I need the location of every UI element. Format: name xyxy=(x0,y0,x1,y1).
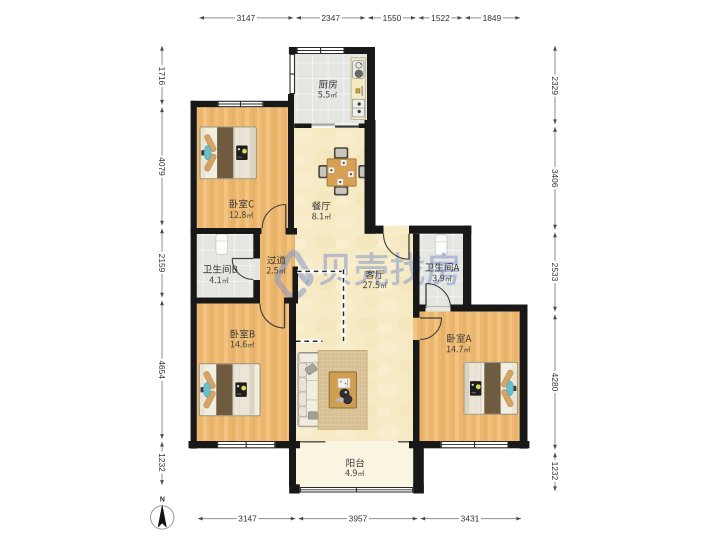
svg-text:N: N xyxy=(160,496,165,503)
svg-text:4280: 4280 xyxy=(550,373,560,392)
svg-text:1232: 1232 xyxy=(157,453,167,472)
svg-text:2347: 2347 xyxy=(321,13,340,23)
svg-text:1522: 1522 xyxy=(431,13,450,23)
svg-text:3957: 3957 xyxy=(349,514,368,524)
svg-text:3406: 3406 xyxy=(550,169,560,188)
svg-text:1232: 1232 xyxy=(550,462,560,481)
svg-text:2329: 2329 xyxy=(550,76,560,95)
svg-text:1716: 1716 xyxy=(157,67,167,86)
svg-text:4654: 4654 xyxy=(157,360,167,379)
svg-text:1550: 1550 xyxy=(383,13,402,23)
svg-text:3431: 3431 xyxy=(461,514,480,524)
svg-text:1849: 1849 xyxy=(483,13,502,23)
svg-text:3147: 3147 xyxy=(237,13,256,23)
svg-text:4079: 4079 xyxy=(157,157,167,176)
svg-text:2159: 2159 xyxy=(157,254,167,273)
svg-text:3147: 3147 xyxy=(238,514,257,524)
svg-text:2533: 2533 xyxy=(550,263,560,282)
